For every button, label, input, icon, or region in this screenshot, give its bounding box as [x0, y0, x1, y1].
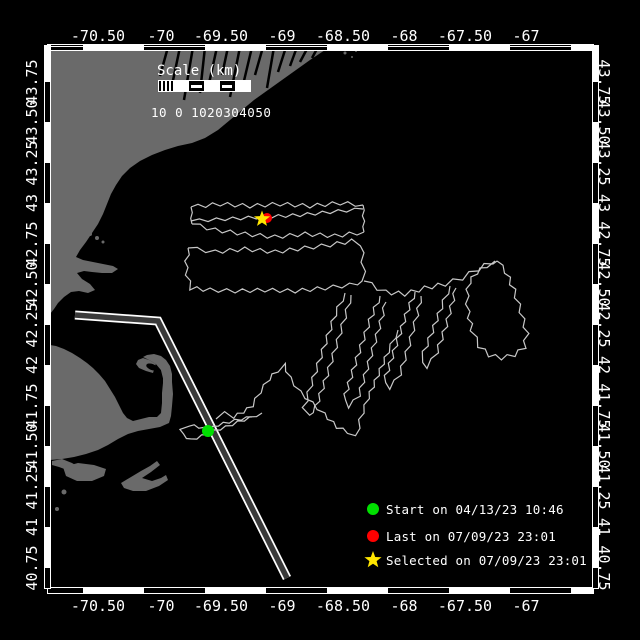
lon-tick-label-bottom: -67	[512, 597, 539, 615]
lat-tick-label-left: 43	[23, 194, 41, 212]
lon-tick-label-top: -67	[512, 27, 539, 45]
start-marker-icon	[367, 503, 379, 515]
lon-tick-label-top: -69.50	[194, 27, 248, 45]
lat-tick-label-right: 43.75	[595, 59, 613, 104]
lon-tick-label-bottom: -67.50	[438, 597, 492, 615]
lon-tick-label-bottom: -70	[147, 597, 174, 615]
legend-selected-label: Selected on 07/09/23 23:01	[386, 553, 587, 568]
lat-tick-label-right: 43.25	[595, 140, 613, 185]
lat-tick-label-left: 43.50	[23, 99, 41, 144]
lat-tick-label-left: 42	[23, 356, 41, 374]
lat-tick-label-left: 43.75	[23, 59, 41, 104]
lon-tick-label-top: -68.50	[316, 27, 370, 45]
lat-tick-label-left: 42.50	[23, 261, 41, 306]
lat-tick-label-left: 42.75	[23, 221, 41, 266]
lat-tick-label-right: 42.25	[595, 302, 613, 347]
lon-tick-label-bottom: -69.50	[194, 597, 248, 615]
legend-item-start: Start on 04/13/23 10:46	[360, 500, 564, 518]
lat-tick-label-right: 42	[595, 356, 613, 374]
selected-star-icon	[362, 550, 384, 570]
lon-tick-label-top: -68	[390, 27, 417, 45]
lat-tick-label-right: 41.75	[595, 383, 613, 428]
lon-tick-label-top: -70	[147, 27, 174, 45]
map-frame-bottom	[48, 588, 593, 593]
lon-tick-label-bottom: -69	[268, 597, 295, 615]
last-marker-icon	[367, 530, 379, 542]
legend-item-selected: Selected on 07/09/23 23:01	[360, 551, 587, 569]
scale-bar-cell	[235, 81, 250, 91]
glider-track-map-window: -70.50-70.50-70-70-69.50-69.50-69-69-68.…	[0, 0, 640, 640]
legend-item-last: Last on 07/09/23 23:01	[360, 527, 556, 545]
scale-bar-subdivided-cell	[159, 81, 174, 91]
lat-tick-label-right: 42.50	[595, 261, 613, 306]
lat-tick-label-left: 41.25	[23, 464, 41, 509]
lat-tick-label-right: 43	[595, 194, 613, 212]
scale-bar-graphic	[158, 80, 251, 92]
lat-tick-label-left: 41.50	[23, 423, 41, 468]
legend-last-label: Last on 07/09/23 23:01	[386, 529, 556, 544]
lat-tick-label-right: 43.50	[595, 99, 613, 144]
lat-tick-label-left: 43.25	[23, 140, 41, 185]
lon-tick-label-top: -67.50	[438, 27, 492, 45]
lon-tick-label-bottom: -70.50	[71, 597, 125, 615]
lon-tick-label-bottom: -68.50	[316, 597, 370, 615]
lat-tick-label-left: 41	[23, 518, 41, 536]
scale-bar-cell	[174, 81, 189, 91]
scale-bar-cell	[204, 81, 219, 91]
scale-bar-tick-labels: 10 0 1020304050	[151, 105, 271, 120]
legend-start-label: Start on 04/13/23 10:46	[386, 502, 564, 517]
scale-bar-cell	[189, 81, 204, 91]
lat-tick-label-right: 42.75	[595, 221, 613, 266]
lat-tick-label-right: 41.25	[595, 464, 613, 509]
lon-tick-label-top: -70.50	[71, 27, 125, 45]
lon-tick-label-top: -69	[268, 27, 295, 45]
lat-tick-label-right: 41.50	[595, 423, 613, 468]
scale-bar-cell	[220, 81, 235, 91]
lat-tick-label-left: 40.75	[23, 545, 41, 590]
lat-tick-label-right: 40.75	[595, 545, 613, 590]
lat-tick-label-left: 42.25	[23, 302, 41, 347]
lat-tick-label-left: 41.75	[23, 383, 41, 428]
scale-bar-title: Scale (km)	[157, 63, 241, 79]
lat-tick-label-right: 41	[595, 518, 613, 536]
lon-tick-label-bottom: -68	[390, 597, 417, 615]
